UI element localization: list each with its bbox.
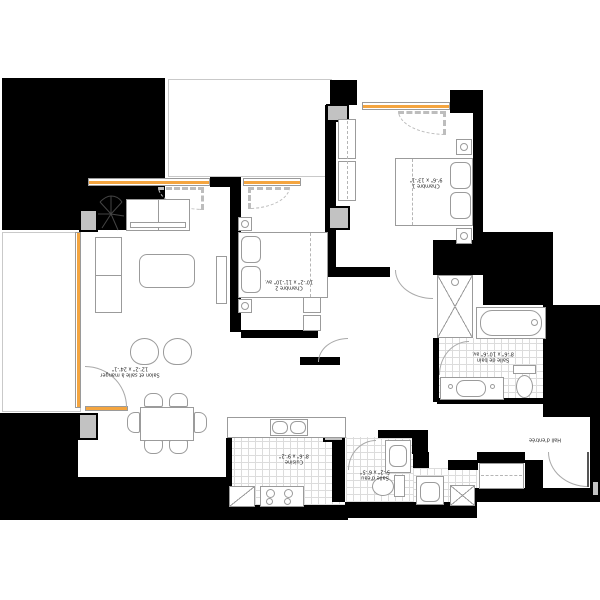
lamp-icon (241, 220, 249, 228)
coffee-table (139, 254, 195, 288)
bathtub-drain-icon (531, 319, 538, 326)
toilet-bowl (516, 375, 533, 398)
wall-segment (78, 477, 228, 520)
room-label-hall: Hall d'entrée (524, 436, 566, 442)
burner-icon (266, 489, 275, 498)
closet (303, 297, 321, 313)
wall-segment (473, 112, 483, 267)
window-band (243, 178, 301, 186)
room-dims: 5'-2" x 6'-5" (352, 468, 398, 474)
room-label-salon: Salon et salle à manger 12'-2" x 24'-1" (85, 365, 175, 378)
room-label-chambre1: Chambre 1 9'-6" x 13'-1" (398, 176, 454, 189)
room-name: Chambre 2 (258, 284, 320, 290)
column (591, 480, 600, 497)
window-casement-arc (248, 187, 290, 209)
burner-icon (266, 498, 273, 505)
wall-segment (330, 80, 357, 105)
wall-segment (413, 452, 429, 468)
window-band (88, 178, 210, 186)
room-label-salle-de-bain: Salle de bain 8'-6" x 10'-6" av. (466, 350, 520, 363)
burner-icon (284, 498, 291, 505)
fridge (229, 486, 255, 507)
adjacent-unit (168, 79, 332, 177)
room-label-chambre2: Chambre 2 10'-2" x 11'-10" av. (258, 278, 320, 291)
column (78, 413, 98, 440)
room-name: Salon et salle à manger (85, 371, 175, 377)
lamp-icon (460, 143, 468, 151)
room-name: Cuisine (268, 458, 320, 464)
wall-segment (543, 305, 600, 417)
room-name: Salle de bain (466, 356, 520, 362)
wall-segment (450, 90, 483, 113)
entry-door-leaf (587, 452, 589, 487)
door-swing-arc (318, 338, 348, 362)
bed-fold-line (412, 159, 413, 225)
wall-segment (433, 338, 439, 402)
lounge-chair (130, 338, 159, 365)
room-dims: 8'-6" x 9'-2" (268, 452, 320, 458)
dining-chair (169, 440, 188, 454)
pillow (450, 192, 471, 219)
toilet-tank (513, 365, 536, 374)
pillow (241, 236, 261, 263)
wall-segment (483, 232, 553, 305)
faucet-icon (490, 384, 495, 389)
closet (479, 463, 524, 489)
sofa-seat-line (130, 222, 186, 228)
wall-segment (448, 460, 478, 470)
lounge-chair (163, 338, 192, 365)
wall-segment (227, 505, 348, 520)
dining-chair (194, 412, 207, 433)
room-name: Hall d'entrée (524, 436, 566, 442)
sink-basin (290, 421, 306, 434)
room-name: Salle d'eau (352, 474, 398, 480)
wall-segment (477, 452, 525, 463)
lamp-icon (241, 302, 249, 310)
lamp-icon (460, 232, 468, 240)
floor-plan-canvas: Chambre 2 10'-2" x 11'-10" av. Chambre 1… (0, 0, 600, 600)
vanity-sink (389, 445, 407, 467)
window-casement-arc (398, 111, 446, 135)
room-dims: 10'-2" x 11'-10" av. (258, 278, 320, 284)
closet (303, 315, 321, 331)
window-band (362, 102, 450, 110)
dining-table (140, 407, 194, 441)
washer-drum (420, 482, 440, 502)
room-dims: 12'-2" x 24'-1" (85, 365, 175, 371)
dining-chair (127, 412, 140, 433)
potted-plant-icon (96, 194, 126, 234)
vanity-sink (456, 380, 486, 397)
room-label-cuisine: Cuisine 8'-6" x 9'-2" (268, 452, 320, 465)
dining-chair (144, 393, 163, 407)
window-band (75, 232, 81, 408)
room-name: Chambre 1 (398, 182, 454, 188)
room-dims: 8'-6" x 10'-6" av. (466, 350, 520, 356)
dining-chair (169, 393, 188, 407)
sink-basin (272, 421, 288, 434)
room-label-salle-eau: Salle d'eau 5'-2" x 6'-5" (352, 468, 398, 481)
burner-icon (284, 489, 293, 498)
tv-console (216, 256, 227, 304)
dining-chair (144, 440, 163, 454)
closet-shelf-line (481, 475, 522, 476)
wall-segment (241, 330, 318, 338)
wall-segment (0, 413, 78, 520)
closet-rod-line (347, 121, 348, 199)
balcony (2, 232, 81, 412)
wall-segment (412, 430, 428, 454)
shower-drain-icon (451, 278, 459, 286)
door-swing-arc (395, 270, 433, 299)
entry-door-swing-arc (548, 452, 588, 487)
faucet-icon (448, 384, 453, 389)
loveseat (95, 237, 122, 313)
water-heater (450, 485, 475, 506)
column (328, 206, 350, 230)
wall-segment (325, 267, 390, 277)
room-dims: 9'-6" x 13'-1" (398, 176, 454, 182)
